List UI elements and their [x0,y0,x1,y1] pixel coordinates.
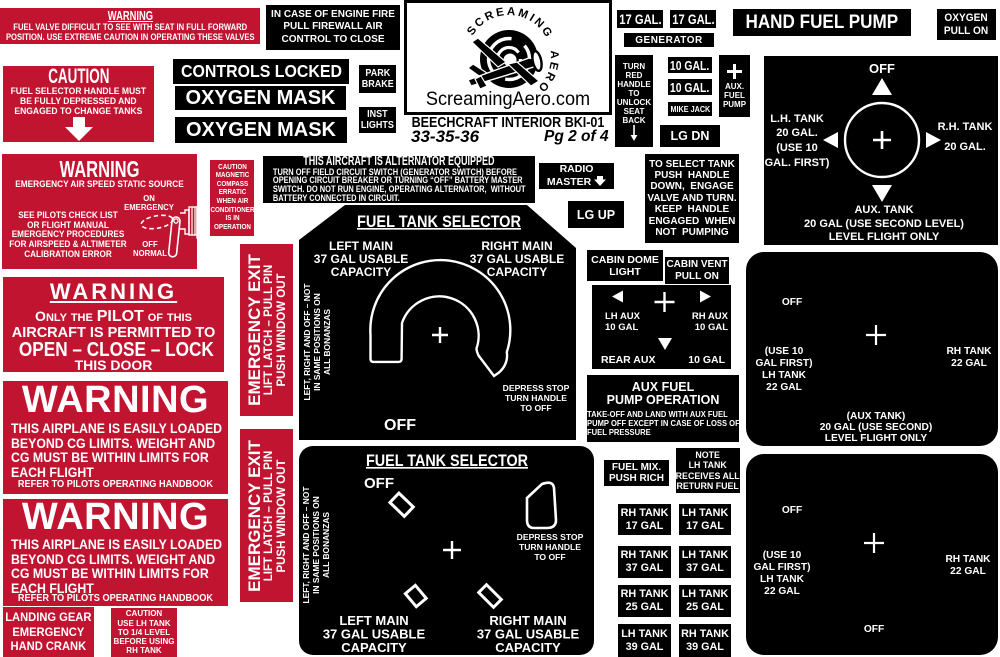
svg-text:OFF: OFF [782,505,802,516]
svg-text:CAPACITY: CAPACITY [495,640,561,655]
svg-text:L.H. TANK: L.H. TANK [770,113,824,125]
svg-text:RH AUX: RH AUX [692,311,729,322]
svg-text:20 GAL.: 20 GAL. [944,141,986,153]
svg-text:GAL FIRST): GAL FIRST) [756,358,813,369]
svg-text:RH TANK: RH TANK [945,554,991,565]
svg-text:IN SAME POSITIONS ON: IN SAME POSITIONS ON [311,496,321,594]
svg-text:RH TANK: RH TANK [946,346,992,357]
svg-text:37 GAL USABLE: 37 GAL USABLE [470,252,564,266]
svg-text:10 GAL: 10 GAL [605,322,638,333]
svg-text:FUEL TANK SELECTOR: FUEL TANK SELECTOR [366,452,528,470]
svg-text:22 GAL: 22 GAL [764,586,800,597]
svg-text:10 GAL: 10 GAL [688,354,725,366]
svg-text:GAL. FIRST): GAL. FIRST) [765,157,830,169]
svg-text:ALL BONANZAS: ALL BONANZAS [321,512,331,578]
svg-text:22 GAL: 22 GAL [950,566,986,577]
svg-text:22 GAL: 22 GAL [766,382,802,393]
svg-text:LH AUX: LH AUX [605,311,641,322]
svg-text:AUX. TANK: AUX. TANK [854,204,913,216]
svg-text:(USE 10: (USE 10 [776,142,818,154]
svg-text:20 GAL (USE SECOND): 20 GAL (USE SECOND) [820,422,932,433]
svg-text:LEVEL FLIGHT ONLY: LEVEL FLIGHT ONLY [829,231,940,243]
svg-text:LEFT MAIN: LEFT MAIN [329,239,393,253]
svg-text:OFF: OFF [782,297,802,308]
svg-text:ALL BONANZAS: ALL BONANZAS [322,309,332,375]
svg-text:LEFT, RIGHT AND OFF – NOT: LEFT, RIGHT AND OFF – NOT [302,283,312,401]
svg-text:CAPACITY: CAPACITY [331,265,391,279]
svg-text:RIGHT MAIN: RIGHT MAIN [481,239,552,253]
svg-text:CAPACITY: CAPACITY [341,640,407,655]
svg-text:OFF: OFF [864,624,884,635]
svg-text:OFF: OFF [869,61,895,76]
svg-text:DEPRESS STOP: DEPRESS STOP [517,532,584,542]
svg-text:CAPACITY: CAPACITY [487,265,547,279]
svg-text:TO OFF: TO OFF [534,552,565,562]
svg-text:R.H. TANK: R.H. TANK [938,121,993,133]
svg-text:LEFT, RIGHT AND OFF – NOT: LEFT, RIGHT AND OFF – NOT [301,486,311,604]
svg-text:GAL FIRST): GAL FIRST) [754,562,811,573]
svg-text:LEVEL FLIGHT ONLY: LEVEL FLIGHT ONLY [825,433,928,444]
svg-text:10 GAL: 10 GAL [695,322,728,333]
svg-text:FUEL TANK SELECTOR: FUEL TANK SELECTOR [357,213,521,231]
svg-text:OFF: OFF [364,475,394,492]
svg-text:LH TANK: LH TANK [762,370,807,381]
svg-text:TURN HANDLE: TURN HANDLE [519,542,581,552]
svg-text:DEPRESS STOP: DEPRESS STOP [503,383,570,393]
svg-text:(USE 10: (USE 10 [763,550,802,561]
svg-text:IN SAME POSITIONS ON: IN SAME POSITIONS ON [312,293,322,391]
svg-text:37 GAL USABLE: 37 GAL USABLE [314,252,408,266]
svg-text:REAR AUX: REAR AUX [601,354,655,366]
svg-text:TO OFF: TO OFF [520,403,551,413]
svg-text:LH TANK: LH TANK [760,574,805,585]
svg-text:20 GAL.: 20 GAL. [776,127,818,139]
svg-text:22 GAL: 22 GAL [951,358,987,369]
svg-text:20 GAL (USE SECOND LEVEL): 20 GAL (USE SECOND LEVEL) [804,218,964,230]
svg-text:OFF: OFF [384,417,416,434]
svg-text:(AUX TANK): (AUX TANK) [847,411,906,422]
svg-text:(USE 10: (USE 10 [765,346,804,357]
svg-text:TURN HANDLE: TURN HANDLE [505,393,567,403]
